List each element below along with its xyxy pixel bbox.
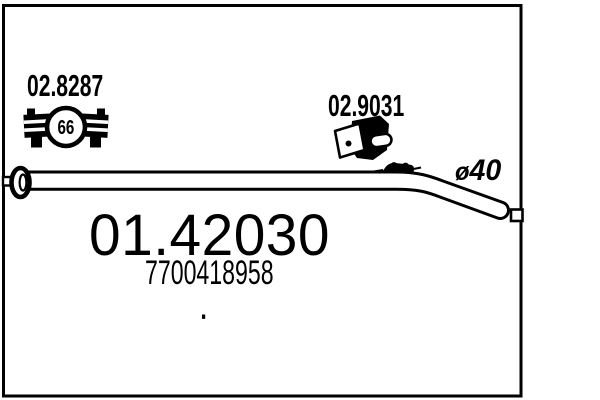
pipe-outlet-mount-square [511, 210, 523, 222]
hanger-hole [346, 141, 352, 147]
small-dot-mark [202, 315, 205, 319]
component-part-number-clamp: 02.8287 [27, 70, 103, 101]
clamp-left-nub [27, 109, 35, 116]
component-part-number-hanger: 02.9031 [328, 90, 404, 121]
diameter-value: 40 [470, 154, 502, 187]
oem-reference-number: 7700418958 [145, 256, 274, 290]
technical-drawing: 66 [0, 0, 600, 400]
diameter-symbol: ø [455, 158, 470, 186]
clamp-left-foot [31, 137, 42, 148]
clamp-right-nub [97, 109, 105, 116]
clamp-right-foot [90, 137, 101, 148]
parts-diagram-canvas: 66 02.8287 02.9031 ø40 01.42030 77004189… [0, 0, 600, 400]
pipe-diameter-label: ø40 [455, 156, 501, 186]
pipe-clamp-icon [374, 162, 421, 172]
frame-border [4, 6, 522, 397]
exhaust-clamp-icon: 66 [23, 108, 108, 148]
clamp-size-badge: 66 [58, 116, 75, 139]
